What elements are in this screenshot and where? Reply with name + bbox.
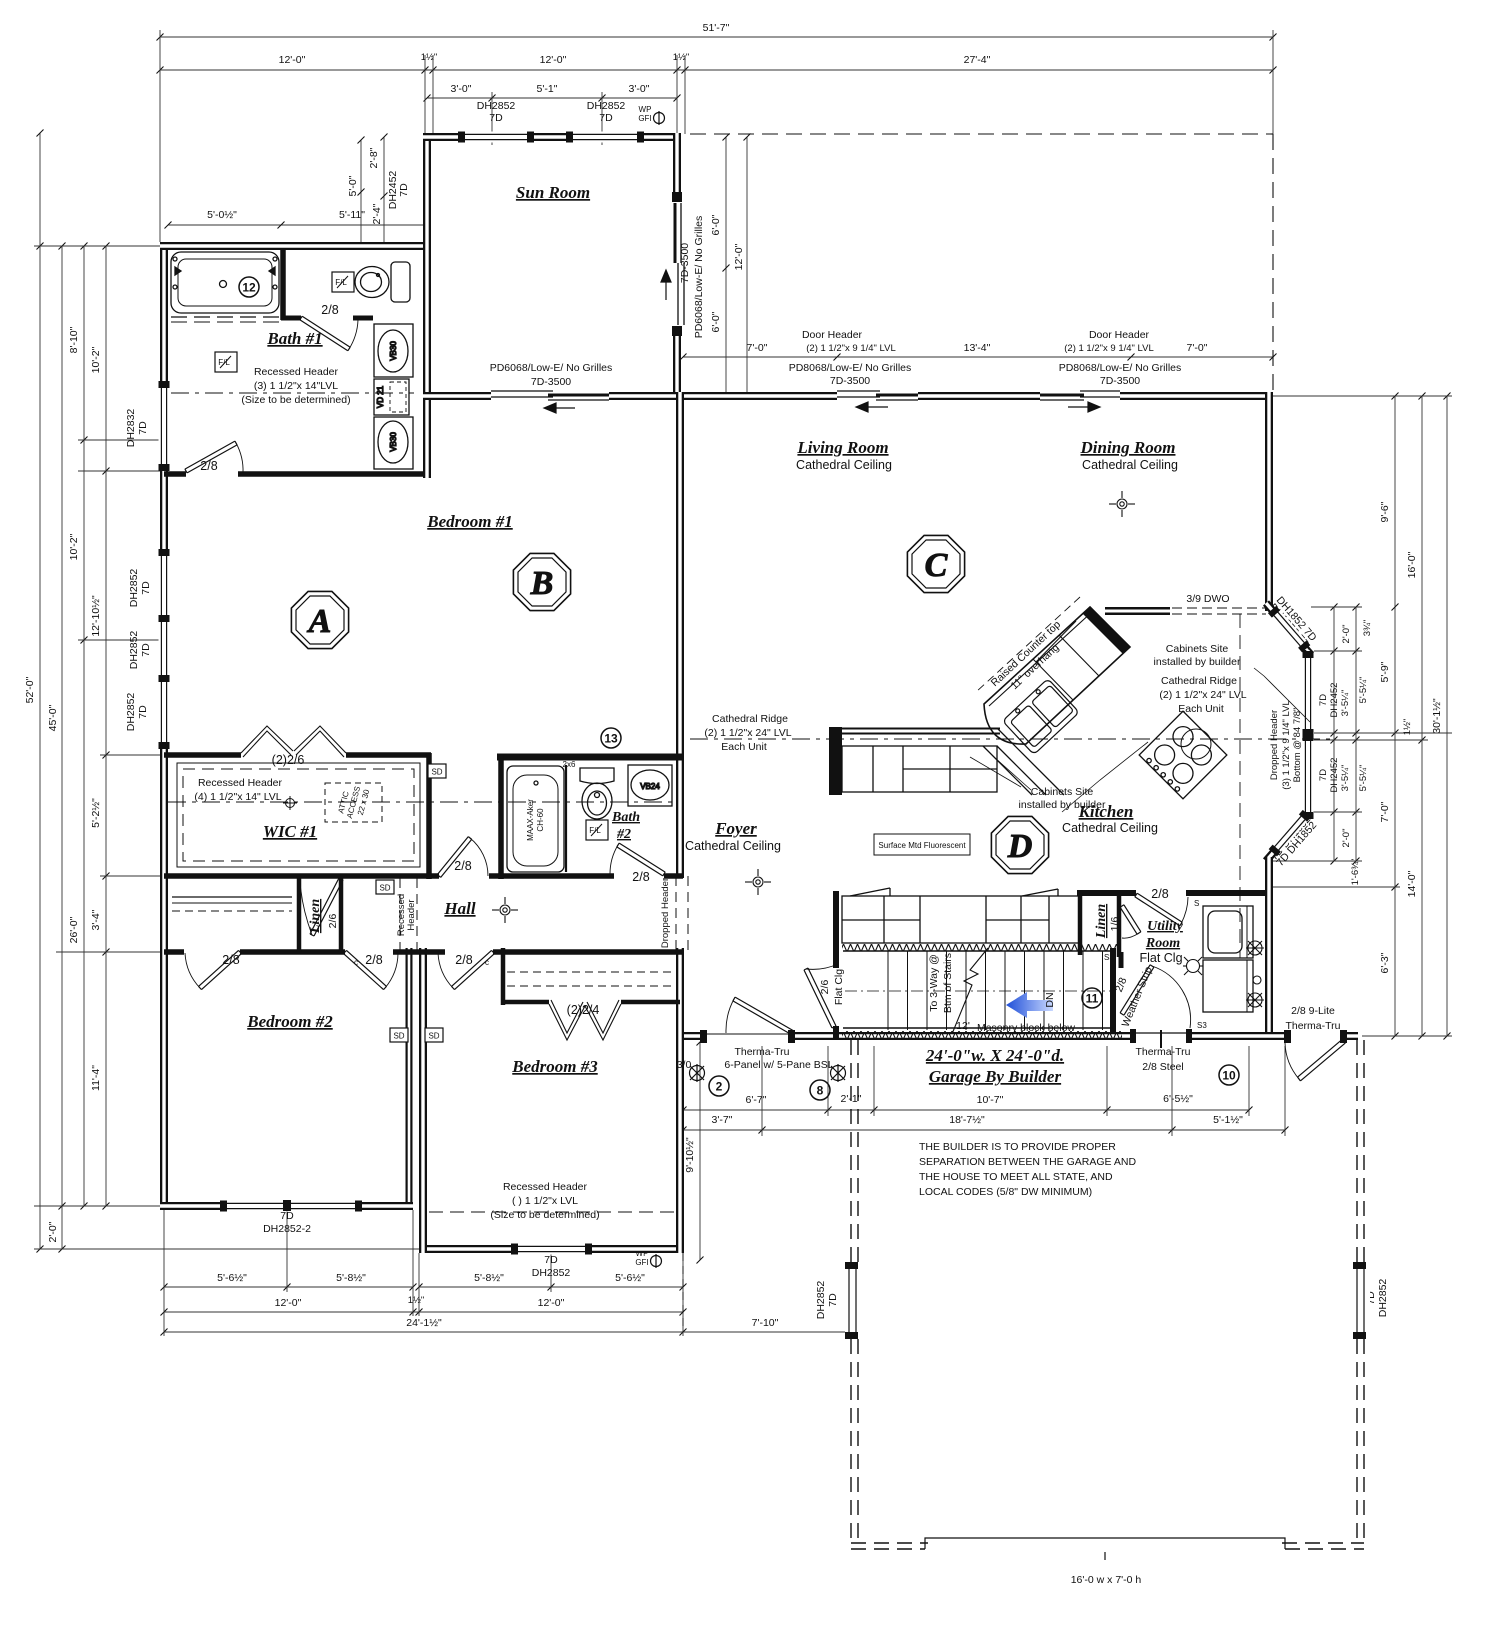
svg-text:Bedroom #3: Bedroom #3 <box>511 1057 598 1076</box>
svg-text:DH2852: DH2852 <box>532 1267 571 1279</box>
svg-text:installed by builder: installed by builder <box>1019 799 1106 811</box>
svg-text:12'-0": 12'-0" <box>279 54 306 66</box>
svg-text:2/8: 2/8 <box>455 953 472 967</box>
svg-text:DH2852: DH2852 <box>815 1281 827 1320</box>
svg-text:PD8068/Low-E/ No Grilles: PD8068/Low-E/ No Grilles <box>789 362 912 374</box>
svg-text:12'-10½": 12'-10½" <box>90 595 102 637</box>
svg-text:11'-4": 11'-4" <box>90 1065 102 1091</box>
svg-text:#2: #2 <box>616 827 631 842</box>
svg-text:3'-5¼": 3'-5¼" <box>1340 690 1351 717</box>
svg-text:11: 11 <box>1086 992 1099 1006</box>
svg-text:C: C <box>925 547 948 584</box>
svg-text:30'-1½": 30'-1½" <box>1431 698 1443 734</box>
svg-text:(3) 1 1/2"x 9 1/4" LVL: (3) 1 1/2"x 9 1/4" LVL <box>1281 700 1292 789</box>
svg-text:Bedroom #2: Bedroom #2 <box>246 1012 333 1031</box>
svg-text:F/L: F/L <box>589 826 601 835</box>
svg-text:SEPARATION BETWEEN THE GARAGE: SEPARATION BETWEEN THE GARAGE AND <box>919 1156 1136 1168</box>
svg-text:7D: 7D <box>137 421 149 435</box>
svg-text:S3: S3 <box>1104 953 1114 962</box>
svg-text:3/9 DWO: 3/9 DWO <box>1186 593 1229 605</box>
svg-text:Dropped Header: Dropped Header <box>660 878 671 948</box>
svg-text:DH2852-2: DH2852-2 <box>263 1223 311 1235</box>
svg-text:2'-4": 2'-4" <box>371 203 383 224</box>
svg-text:(Size to be determined): (Size to be determined) <box>490 1209 599 1221</box>
svg-text:(3) 1 1/2"x 14"LVL: (3) 1 1/2"x 14"LVL <box>254 380 338 392</box>
svg-text:1½": 1½" <box>408 1295 425 1306</box>
svg-text:1½": 1½" <box>673 52 690 63</box>
svg-text:2/8: 2/8 <box>321 303 338 317</box>
svg-text:PD6068/Low-E/ No Grilles: PD6068/Low-E/ No Grilles <box>693 216 705 339</box>
svg-text:Bottom @ 84 7/8": Bottom @ 84 7/8" <box>1292 708 1303 783</box>
svg-text:DH2852: DH2852 <box>128 569 140 608</box>
svg-text:16'-0": 16'-0" <box>1406 551 1418 578</box>
svg-text:2/8 9-Lite: 2/8 9-Lite <box>1291 1005 1335 1017</box>
svg-text:Header: Header <box>406 899 417 930</box>
svg-text:10'-2": 10'-2" <box>68 533 80 560</box>
svg-text:Door Header: Door Header <box>1089 329 1150 341</box>
svg-text:2'-8": 2'-8" <box>368 147 380 168</box>
svg-text:WIC #1: WIC #1 <box>263 822 317 841</box>
svg-text:LOCAL CODES (5/8" DW MINIMUM): LOCAL CODES (5/8" DW MINIMUM) <box>919 1186 1092 1198</box>
svg-text:Living Room: Living Room <box>796 438 888 457</box>
svg-text:27'-4": 27'-4" <box>964 54 991 66</box>
svg-text:2/8: 2/8 <box>365 953 382 967</box>
svg-text:3'-5¼": 3'-5¼" <box>1340 765 1351 792</box>
svg-text:6'-0": 6'-0" <box>710 214 722 235</box>
svg-text:14'-0": 14'-0" <box>1406 870 1418 897</box>
svg-text:Cathedral Ceiling: Cathedral Ceiling <box>1062 821 1158 835</box>
svg-text:DN: DN <box>1044 992 1056 1007</box>
svg-text:2'-0": 2'-0" <box>47 1221 59 1242</box>
svg-text:6-Panel w/ 5-Pane BSL: 6-Panel w/ 5-Pane BSL <box>724 1059 833 1071</box>
svg-text:B: B <box>530 565 554 602</box>
svg-text:(2)2/4: (2)2/4 <box>567 1003 600 1017</box>
svg-text:Cathedral Ridge: Cathedral Ridge <box>712 713 788 725</box>
svg-text:45'-0": 45'-0" <box>47 704 59 731</box>
svg-text:DH2852: DH2852 <box>587 100 626 112</box>
svg-text:7'-10": 7'-10" <box>752 1317 779 1329</box>
svg-text:2'-0": 2'-0" <box>1341 829 1352 848</box>
svg-text:7'-0": 7'-0" <box>1187 342 1208 354</box>
svg-text:7D: 7D <box>1318 769 1329 781</box>
svg-text:2/8: 2/8 <box>632 870 649 884</box>
svg-text:8: 8 <box>817 1084 824 1098</box>
svg-text:To 3-Way @: To 3-Way @ <box>928 954 940 1012</box>
svg-text:Btm of Stairs: Btm of Stairs <box>942 953 954 1013</box>
svg-text:51'-7": 51'-7" <box>703 22 730 34</box>
svg-text:Surface Mtd Fluorescent: Surface Mtd Fluorescent <box>878 841 966 850</box>
svg-text:DH2852: DH2852 <box>1377 1279 1389 1318</box>
svg-text:5'-2½": 5'-2½" <box>90 798 102 828</box>
svg-text:Each Unit: Each Unit <box>1178 703 1224 715</box>
svg-text:7D: 7D <box>1318 694 1329 706</box>
svg-text:12': 12' <box>956 1020 970 1032</box>
svg-text:12'-0": 12'-0" <box>275 1297 302 1309</box>
svg-text:8'-10": 8'-10" <box>68 326 80 353</box>
svg-text:A: A <box>307 603 332 640</box>
svg-text:10: 10 <box>1222 1069 1236 1083</box>
svg-text:7D: 7D <box>280 1210 294 1222</box>
svg-text:c: c <box>485 958 489 967</box>
svg-text:Therma-Tru: Therma-Tru <box>734 1046 789 1058</box>
svg-text:Recessed Header: Recessed Header <box>198 777 283 789</box>
svg-text:SD: SD <box>393 1032 404 1041</box>
svg-text:Masonry block below: Masonry block below <box>977 1022 1075 1034</box>
svg-text:(Size to be determined): (Size to be determined) <box>241 394 350 406</box>
svg-text:DH2852: DH2852 <box>477 100 516 112</box>
svg-text:2/8: 2/8 <box>1151 887 1168 901</box>
svg-text:Each Unit: Each Unit <box>721 741 767 753</box>
svg-text:10'-2": 10'-2" <box>90 346 102 373</box>
svg-text:Hall: Hall <box>443 899 475 918</box>
svg-text:1'-6¾": 1'-6¾" <box>1350 859 1361 886</box>
svg-text:Cabinets Site: Cabinets Site <box>1031 786 1094 798</box>
svg-text:2x6: 2x6 <box>563 760 576 769</box>
svg-text:16'-0 w x 7'-0 h: 16'-0 w x 7'-0 h <box>1071 1574 1142 1586</box>
svg-text:Dining Room: Dining Room <box>1080 438 1176 457</box>
svg-text:(2) 1 1/2"x 24" LVL: (2) 1 1/2"x 24" LVL <box>1159 689 1246 701</box>
svg-text:SD: SD <box>431 768 442 777</box>
svg-text:24'-0"w. X 24'-0"d.: 24'-0"w. X 24'-0"d. <box>925 1046 1064 1065</box>
svg-text:DH2852: DH2852 <box>128 631 140 670</box>
svg-text:7D-3500: 7D-3500 <box>531 376 571 388</box>
svg-text:5'-6½": 5'-6½" <box>615 1272 645 1284</box>
svg-text:7D: 7D <box>827 1293 839 1307</box>
svg-text:Cathedral Ceiling: Cathedral Ceiling <box>796 458 892 472</box>
svg-text:18'-7½": 18'-7½" <box>949 1114 985 1126</box>
svg-text:2/8: 2/8 <box>454 859 471 873</box>
svg-text:CH-60: CH-60 <box>536 808 545 832</box>
svg-text:VB24: VB24 <box>640 782 660 791</box>
svg-text:10'-7": 10'-7" <box>977 1094 1004 1106</box>
svg-text:Cathedral Ceiling: Cathedral Ceiling <box>1082 458 1178 472</box>
svg-text:VB30: VB30 <box>389 341 398 361</box>
svg-text:7D: 7D <box>489 112 503 124</box>
svg-text:PD6068/Low-E/ No Grilles: PD6068/Low-E/ No Grilles <box>490 362 613 374</box>
svg-text:24'-1½": 24'-1½" <box>406 1317 442 1329</box>
svg-text:Door Header: Door Header <box>802 329 863 341</box>
svg-text:Bedroom #1: Bedroom #1 <box>426 512 512 531</box>
svg-text:2/8 Steel: 2/8 Steel <box>1142 1061 1183 1073</box>
svg-text:5'-8½": 5'-8½" <box>336 1272 366 1284</box>
svg-text:2'-0": 2'-0" <box>1341 625 1352 644</box>
svg-text:S: S <box>1194 899 1199 908</box>
svg-text:Recessed Header: Recessed Header <box>503 1181 588 1193</box>
svg-text:Therma-Tru: Therma-Tru <box>1285 1020 1340 1032</box>
svg-text:THE HOUSE TO MEET ALL STATE, A: THE HOUSE TO MEET ALL STATE, AND <box>919 1171 1113 1183</box>
svg-text:5'-0": 5'-0" <box>347 175 359 196</box>
svg-text:3'-7": 3'-7" <box>712 1114 733 1126</box>
svg-text:c: c <box>354 958 358 967</box>
svg-text:(2)2/6: (2)2/6 <box>272 753 305 767</box>
svg-text:5'-6½": 5'-6½" <box>217 1272 247 1284</box>
svg-text:F/L: F/L <box>335 278 347 287</box>
svg-text:7D: 7D <box>137 705 149 719</box>
svg-text:6'-3": 6'-3" <box>1379 952 1391 973</box>
svg-text:( ) 1 1/2"x LVL: ( ) 1 1/2"x LVL <box>512 1195 578 1207</box>
svg-text:3/0: 3/0 <box>677 1059 692 1071</box>
svg-text:7'-0": 7'-0" <box>1379 801 1391 822</box>
svg-text:SD: SD <box>428 1032 439 1041</box>
svg-text:VB30: VB30 <box>389 432 398 452</box>
svg-text:Bath: Bath <box>611 810 640 825</box>
svg-text:Dropped Header: Dropped Header <box>1269 710 1280 780</box>
svg-text:3'-4": 3'-4" <box>90 909 102 930</box>
svg-text:7D-3500: 7D-3500 <box>1100 375 1140 387</box>
svg-text:3¾": 3¾" <box>1362 620 1373 637</box>
svg-text:2/8: 2/8 <box>200 459 217 473</box>
svg-text:7D-3500: 7D-3500 <box>830 375 870 387</box>
svg-text:Room: Room <box>1145 936 1180 951</box>
svg-text:3'-0": 3'-0" <box>451 83 472 95</box>
svg-text:12: 12 <box>242 281 256 295</box>
svg-text:DH2832: DH2832 <box>125 409 137 448</box>
svg-text:12'-0": 12'-0" <box>540 54 567 66</box>
svg-text:Linen: Linen <box>1094 904 1109 939</box>
svg-text:5'-0½": 5'-0½" <box>207 209 237 221</box>
svg-text:(2) 1 1/2"x 9 1/4" LVL: (2) 1 1/2"x 9 1/4" LVL <box>1064 343 1153 354</box>
svg-text:GFI: GFI <box>638 114 651 123</box>
svg-text:3'-0": 3'-0" <box>629 83 650 95</box>
svg-text:Cathedral Ridge: Cathedral Ridge <box>1161 675 1237 687</box>
svg-text:GFI: GFI <box>635 1258 648 1267</box>
svg-text:5'-5¼": 5'-5¼" <box>1358 765 1369 792</box>
svg-text:6'-0": 6'-0" <box>710 311 722 332</box>
svg-text:6'-5½": 6'-5½" <box>1163 1093 1193 1105</box>
svg-text:7D-3500: 7D-3500 <box>679 243 691 283</box>
svg-text:5'-8½": 5'-8½" <box>474 1272 504 1284</box>
svg-text:SD: SD <box>379 884 390 893</box>
svg-text:5'-1": 5'-1" <box>537 83 558 95</box>
svg-text:VD 21: VD 21 <box>376 385 385 408</box>
svg-text:5'-5¼": 5'-5¼" <box>1358 677 1369 704</box>
svg-text:Sun Room: Sun Room <box>516 183 590 202</box>
svg-text:DH2852: DH2852 <box>125 693 137 732</box>
svg-text:Flat Clg: Flat Clg <box>833 969 845 1005</box>
svg-text:13'-4": 13'-4" <box>964 342 991 354</box>
svg-text:7'-0": 7'-0" <box>747 342 768 354</box>
svg-text:F/L: F/L <box>218 358 230 367</box>
svg-text:5'-1½": 5'-1½" <box>1213 1114 1243 1126</box>
svg-text:D: D <box>1007 828 1033 865</box>
svg-text:Cathedral Ceiling: Cathedral Ceiling <box>685 839 781 853</box>
svg-text:7D: 7D <box>544 1254 558 1266</box>
svg-text:Linen: Linen <box>308 899 323 934</box>
svg-text:7D: 7D <box>398 183 410 197</box>
svg-text:DH2452: DH2452 <box>1329 758 1340 793</box>
svg-text:installed by builder: installed by builder <box>1154 656 1241 668</box>
svg-text:7D: 7D <box>599 112 613 124</box>
svg-text:7D: 7D <box>140 643 152 657</box>
svg-text:MAAX-Aker: MAAX-Aker <box>526 799 535 841</box>
svg-text:(4) 1 1/2"x 14" LVL: (4) 1 1/2"x 14" LVL <box>194 791 281 803</box>
svg-text:13: 13 <box>604 732 618 746</box>
svg-text:Flat Clg: Flat Clg <box>1139 951 1182 965</box>
svg-text:Cabinets Site: Cabinets Site <box>1166 643 1229 655</box>
svg-text:2/6: 2/6 <box>819 980 831 995</box>
svg-text:Garage By Builder: Garage By Builder <box>929 1067 1062 1086</box>
svg-text:Therma-Tru: Therma-Tru <box>1135 1046 1190 1058</box>
svg-text:5'-9": 5'-9" <box>1379 661 1391 682</box>
svg-text:1½": 1½" <box>421 52 438 63</box>
svg-text:PD8068/Low-E/ No Grilles: PD8068/Low-E/ No Grilles <box>1059 362 1182 374</box>
svg-text:S3: S3 <box>1197 1021 1207 1030</box>
svg-text:WP: WP <box>639 105 652 114</box>
svg-text:1/6: 1/6 <box>1109 917 1121 932</box>
svg-text:2: 2 <box>716 1080 723 1094</box>
svg-text:6'-7": 6'-7" <box>746 1094 767 1106</box>
svg-text:7D: 7D <box>140 581 152 595</box>
svg-text:12'-0": 12'-0" <box>538 1297 565 1309</box>
svg-text:Foyer: Foyer <box>714 819 757 838</box>
svg-text:(2) 1 1/2"x 9 1/4" LVL: (2) 1 1/2"x 9 1/4" LVL <box>806 343 895 354</box>
svg-text:26'-0": 26'-0" <box>68 916 80 943</box>
svg-text:12'-0": 12'-0" <box>733 243 745 270</box>
svg-text:52'-0": 52'-0" <box>24 676 36 703</box>
svg-text:9'-6": 9'-6" <box>1379 501 1391 522</box>
svg-text:2/8: 2/8 <box>222 953 239 967</box>
svg-text:2/6: 2/6 <box>327 914 339 929</box>
svg-text:(2) 1 1/2"x 24" LVL: (2) 1 1/2"x 24" LVL <box>704 727 791 739</box>
svg-text:Bath #1: Bath #1 <box>266 329 322 348</box>
svg-text:DH2452: DH2452 <box>1329 683 1340 718</box>
svg-text:Recessed Header: Recessed Header <box>254 366 339 378</box>
svg-text:9'-10½": 9'-10½" <box>684 1137 696 1173</box>
svg-text:Utility: Utility <box>1147 919 1184 934</box>
svg-text:THE BUILDER IS TO PROVIDE PROP: THE BUILDER IS TO PROVIDE PROPER <box>919 1141 1116 1153</box>
